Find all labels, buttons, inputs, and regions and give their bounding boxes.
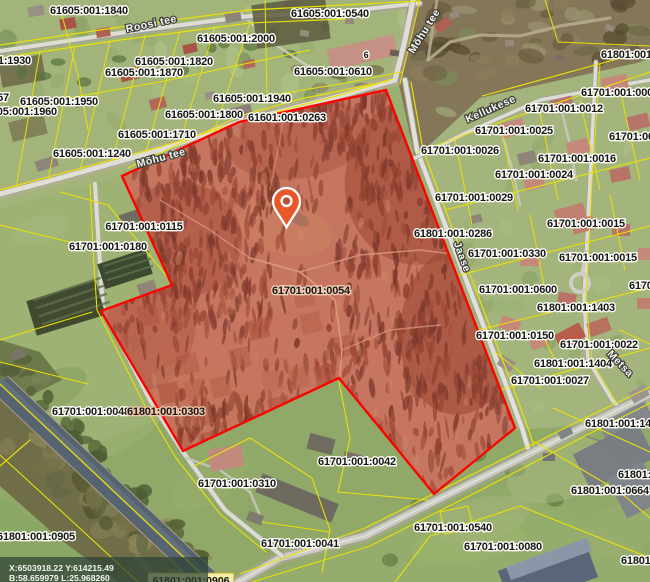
svg-text:61801:001:0668: 61801:001:0668 xyxy=(618,469,650,481)
svg-text:61605:001:0610: 61605:001:0610 xyxy=(294,66,372,78)
svg-text:61605:001:2000: 61605:001:2000 xyxy=(197,33,275,45)
svg-text:61701:001:0022: 61701:001:0022 xyxy=(560,339,638,351)
svg-text:61801:001:0905: 61801:001:0905 xyxy=(0,531,75,543)
svg-text:61701:001:0027: 61701:001:0027 xyxy=(511,375,589,387)
svg-text:61701:001:0015: 61701:001:0015 xyxy=(559,252,637,264)
svg-text:61605:001:1840: 61605:001:1840 xyxy=(50,5,128,17)
svg-text:61801:001:1404: 61801:001:1404 xyxy=(534,358,613,370)
svg-text:6: 6 xyxy=(364,50,369,60)
svg-text:B:58.659979 L:25.968260: B:58.659979 L:25.968260 xyxy=(9,573,110,582)
svg-text:61801:001:1403: 61801:001:1403 xyxy=(537,302,615,314)
svg-text:61701:001:0042: 61701:001:0042 xyxy=(318,456,396,468)
svg-text:61605:001:1940: 61605:001:1940 xyxy=(213,93,291,105)
svg-text:57: 57 xyxy=(0,92,9,104)
svg-text:61601:001:0263: 61601:001:0263 xyxy=(248,112,326,124)
svg-text:61701:001:0054: 61701:001:0054 xyxy=(272,285,351,297)
svg-text:61701:001:0115: 61701:001:0115 xyxy=(105,221,182,233)
svg-text:61801:001:0664: 61801:001:0664 xyxy=(571,485,650,497)
svg-text:61801:001:0286: 61801:001:0286 xyxy=(414,228,492,240)
svg-text:61701:001:0015: 61701:001:0015 xyxy=(547,218,625,230)
svg-text:61701:001:0018: 61701:001:0018 xyxy=(629,280,650,292)
svg-text:61605:001:1960: 61605:001:1960 xyxy=(0,106,57,118)
svg-text:61605:001:1800: 61605:001:1800 xyxy=(165,109,243,121)
svg-text:61701:001:0600: 61701:001:0600 xyxy=(479,284,557,296)
svg-text:61701:001:0026: 61701:001:0026 xyxy=(421,145,499,157)
svg-text:61701:001:0029: 61701:001:0029 xyxy=(435,192,513,204)
svg-text:61701:001:0025: 61701:001:0025 xyxy=(475,125,553,137)
svg-text:61701:001:0048: 61701:001:0048 xyxy=(52,406,130,418)
svg-text:61701:001:0024: 61701:001:0024 xyxy=(495,169,574,181)
svg-text:61605:001:1870: 61605:001:1870 xyxy=(105,67,183,79)
svg-text:61701:001:0016: 61701:001:0016 xyxy=(538,153,616,165)
svg-text:61701:001:0310: 61701:001:0310 xyxy=(198,478,276,490)
svg-text:61701:001:0041: 61701:001:0041 xyxy=(261,538,339,550)
svg-text:61701:001:0080: 61701:001:0080 xyxy=(464,541,542,553)
svg-text:61605:001:1240: 61605:001:1240 xyxy=(53,148,131,160)
svg-text:61701:001:0009: 61701:001:0009 xyxy=(581,87,650,99)
svg-text:61801:001:0303: 61801:001:0303 xyxy=(127,406,205,418)
svg-text:61701:001:0013: 61701:001:0013 xyxy=(609,131,650,143)
svg-text:61701:001:0150: 61701:001:0150 xyxy=(476,330,554,342)
svg-text:X:6503918.22 Y:614215.49: X:6503918.22 Y:614215.49 xyxy=(9,563,114,573)
svg-text:61801:001:0066: 61801:001:0066 xyxy=(621,555,650,567)
svg-text:61801:001:0340: 61801:001:0340 xyxy=(601,49,650,61)
svg-text:61605:001:0540: 61605:001:0540 xyxy=(291,8,369,20)
svg-text:61701:001:0180: 61701:001:0180 xyxy=(69,241,147,253)
svg-text:61701:001:0540: 61701:001:0540 xyxy=(414,522,492,534)
svg-text:61605:001:1710: 61605:001:1710 xyxy=(118,129,196,141)
svg-text:61801:001:1429: 61801:001:1429 xyxy=(585,418,650,430)
svg-text:61605:001:1930: 61605:001:1930 xyxy=(0,55,31,67)
svg-text:61701:001:0012: 61701:001:0012 xyxy=(525,103,603,115)
svg-text:61701:001:0330: 61701:001:0330 xyxy=(468,248,546,260)
